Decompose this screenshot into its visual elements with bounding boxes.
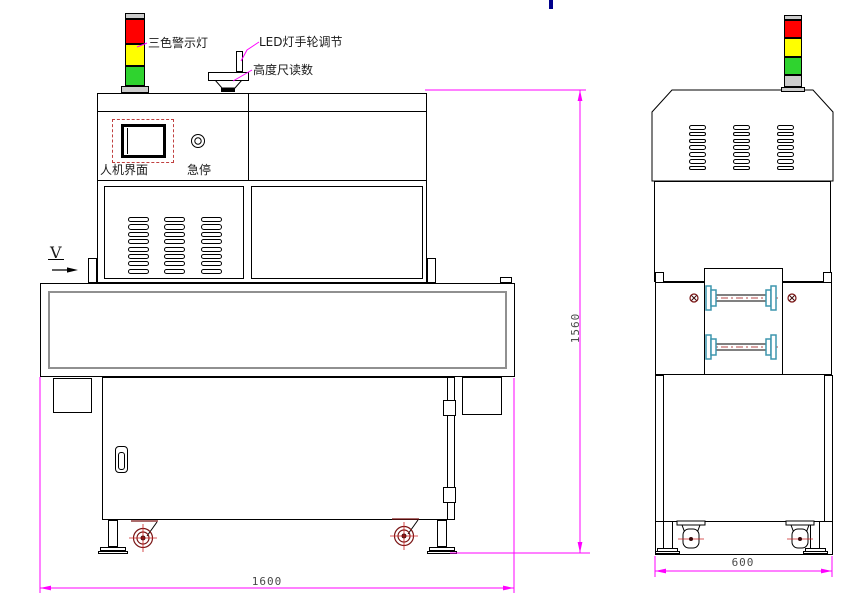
vent-slot <box>128 254 149 259</box>
handwheel-base <box>221 88 235 92</box>
vent-slot <box>777 145 794 150</box>
vent-slot <box>689 139 706 144</box>
leveling-foot-stem <box>108 520 118 547</box>
handwheel-cone <box>215 80 242 88</box>
height-scale-label: 高度尺读数 <box>253 64 313 77</box>
vent-slot <box>164 224 185 229</box>
vent-slot <box>689 159 706 164</box>
engineering-drawing: 三色警示灯 LED灯手轮调节 高度尺读数 人机界面 急停 V 1600 600 … <box>0 0 863 599</box>
hmi-label: 人机界面 <box>100 164 148 177</box>
vent-column <box>128 217 149 274</box>
vent-slot <box>201 254 222 259</box>
side-center-panel <box>704 268 783 375</box>
vent-slot <box>201 261 222 266</box>
vent-slot <box>164 261 185 266</box>
vent-slot <box>128 217 149 222</box>
side-upper-body <box>654 181 831 282</box>
vent-slot <box>689 152 706 157</box>
vent-column <box>777 125 794 170</box>
door-hinge-bottom <box>443 487 456 503</box>
leveling-foot-base <box>98 551 128 554</box>
led-handwheel-label: LED灯手轮调节 <box>259 36 343 49</box>
head-right-tab <box>427 258 436 283</box>
vent-slot <box>201 239 222 244</box>
vent-slot <box>733 166 750 171</box>
vent-slot <box>689 132 706 137</box>
vent-slot <box>128 261 149 266</box>
door-handle-grip <box>118 452 125 470</box>
leveling-foot-base <box>655 551 680 554</box>
head-top-band-line <box>97 111 427 112</box>
vent-slot <box>733 159 750 164</box>
front-vent-panel-right <box>251 186 423 279</box>
vent-slot <box>164 247 185 252</box>
vent-slot <box>777 159 794 164</box>
vent-slot <box>777 132 794 137</box>
vent-slot <box>777 152 794 157</box>
vent-slot <box>733 139 750 144</box>
vent-slot <box>128 224 149 229</box>
vent-slot <box>201 269 222 274</box>
leveling-foot-stem <box>810 521 820 549</box>
vent-column <box>201 217 222 274</box>
vent-slot <box>777 125 794 130</box>
head-divider-line <box>248 93 249 180</box>
vent-column <box>733 125 750 170</box>
side-right-notch <box>823 272 832 283</box>
leveling-foot-base <box>427 551 457 554</box>
conveyor-opening <box>48 291 507 369</box>
door-hinge-top <box>443 400 456 416</box>
vent-slot <box>164 217 185 222</box>
vent-slot <box>689 166 706 171</box>
stack-light-red <box>784 20 802 38</box>
vent-slot <box>128 232 149 237</box>
stack-light-label: 三色警示灯 <box>148 37 208 50</box>
leveling-foot-stem <box>437 520 447 547</box>
stack-light-flange <box>121 86 149 93</box>
vent-slot <box>128 269 149 274</box>
vent-slot <box>201 247 222 252</box>
dimension-text-1600: 1600 <box>245 576 289 588</box>
handwheel-disk[interactable] <box>208 72 249 81</box>
vent-slot <box>128 247 149 252</box>
vent-slot <box>777 139 794 144</box>
dimension-text-1560: 1560 <box>570 303 582 353</box>
vent-slot <box>164 254 185 259</box>
estop-label: 急停 <box>187 164 211 177</box>
stack-light-yellow <box>125 44 145 66</box>
vent-slot <box>201 224 222 229</box>
leveling-foot-stem <box>663 521 673 549</box>
stack-light-flange <box>781 87 805 92</box>
vent-slot <box>201 217 222 222</box>
vent-slot <box>733 145 750 150</box>
vent-slot <box>164 269 185 274</box>
stack-light-green <box>125 66 145 86</box>
vent-column <box>164 217 185 274</box>
stack-light-yellow <box>784 38 802 57</box>
vent-slot <box>733 125 750 130</box>
head-mid-line <box>97 180 427 181</box>
stack-light-red <box>125 19 145 44</box>
vent-slot <box>201 232 222 237</box>
vent-slot <box>733 132 750 137</box>
vent-slot <box>689 145 706 150</box>
vent-column <box>689 125 706 170</box>
head-left-tab <box>88 258 97 283</box>
dimension-text-600: 600 <box>725 557 761 569</box>
stack-light-stem <box>784 75 802 87</box>
vent-slot <box>777 166 794 171</box>
vent-slot <box>164 232 185 237</box>
vent-slot <box>733 152 750 157</box>
view-direction-label: V <box>48 246 64 260</box>
vent-slot <box>689 125 706 130</box>
hmi-screen-edge <box>127 128 128 154</box>
vent-slot <box>128 239 149 244</box>
handwheel-shaft[interactable] <box>236 51 243 72</box>
leveling-foot-base <box>803 551 828 554</box>
text-cursor <box>549 0 553 9</box>
side-left-notch <box>655 272 664 283</box>
stack-light-green <box>784 57 802 75</box>
vent-slot <box>164 239 185 244</box>
